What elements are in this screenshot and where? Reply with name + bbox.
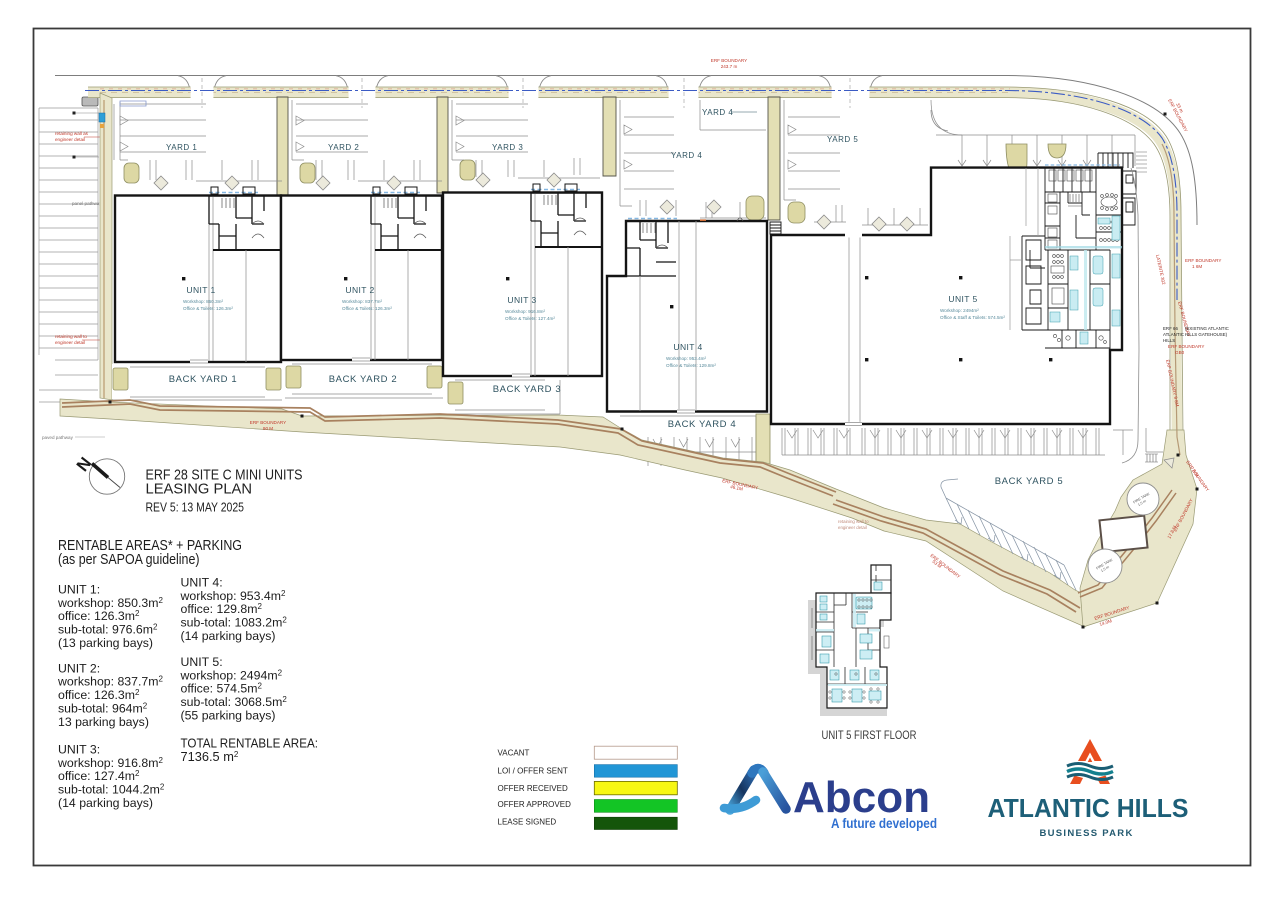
svg-text:Workshop: 953.4m²: Workshop: 953.4m² <box>666 356 706 361</box>
svg-text:office: 129.8m2: office: 129.8m2 <box>181 602 263 616</box>
svg-text:13 parking bays): 13 parking bays) <box>58 715 149 729</box>
svg-text:retaining wall to: retaining wall to <box>55 334 87 339</box>
svg-text:Workshop: 916.8m²: Workshop: 916.8m² <box>505 309 545 314</box>
svg-text:UNIT 5 FIRST FLOOR: UNIT 5 FIRST FLOOR <box>822 728 917 742</box>
svg-text:paved pathway: paved pathway <box>42 435 74 440</box>
svg-text:BUSINESS PARK: BUSINESS PARK <box>1040 828 1137 839</box>
svg-text:7136.5 m2: 7136.5 m2 <box>181 749 239 764</box>
svg-text:(as per SAPOA guideline): (as per SAPOA guideline) <box>58 552 200 568</box>
svg-text:BACK YARD 1: BACK YARD 1 <box>169 374 238 385</box>
svg-text:Office & Staff & Toilets: 574.: Office & Staff & Toilets: 574.5m² <box>940 315 1005 320</box>
svg-text:Workshop: 2494m²: Workshop: 2494m² <box>940 308 979 313</box>
svg-text:office: 574.5m2: office: 574.5m2 <box>181 682 263 696</box>
svg-text:1 6M: 1 6M <box>1192 264 1202 269</box>
svg-text:(EXISTING ATLANTIC: (EXISTING ATLANTIC <box>1185 326 1229 331</box>
svg-text:ATLANTIC HILLS: ATLANTIC HILLS <box>988 795 1189 823</box>
svg-text:HILLS GATEHOUSE): HILLS GATEHOUSE) <box>1185 332 1228 337</box>
svg-text:YARD 4: YARD 4 <box>702 108 733 117</box>
svg-text:(14 parking bays): (14 parking bays) <box>181 629 276 643</box>
svg-text:Workshop: 850.3m²: Workshop: 850.3m² <box>183 299 223 304</box>
svg-text:A future developed: A future developed <box>831 816 937 831</box>
svg-text:YARD 2: YARD 2 <box>328 143 359 152</box>
svg-text:Abcon: Abcon <box>793 773 930 822</box>
svg-text:BACK YARD 3: BACK YARD 3 <box>493 384 562 395</box>
svg-text:ATLANTIC: ATLANTIC <box>1163 332 1184 337</box>
svg-text:workshop: 837.7m2: workshop: 837.7m2 <box>57 675 163 689</box>
svg-text:UNIT 1:: UNIT 1: <box>58 582 100 596</box>
svg-text:Office & Toilets: 126.3m²: Office & Toilets: 126.3m² <box>342 306 392 311</box>
svg-text:ERF BOUNDARY: ERF BOUNDARY <box>1168 344 1204 349</box>
svg-text:Office & Toilets: 129.8m²: Office & Toilets: 129.8m² <box>666 363 716 368</box>
svg-text:UNIT 5: UNIT 5 <box>948 294 977 304</box>
svg-text:YARD 3: YARD 3 <box>492 143 523 152</box>
svg-text:workshop: 850.3m2: workshop: 850.3m2 <box>57 596 163 610</box>
svg-text:workshop: 916.8m2: workshop: 916.8m2 <box>57 756 163 770</box>
svg-text:office: 126.3m2: office: 126.3m2 <box>58 609 140 623</box>
svg-text:LEASE SIGNED: LEASE SIGNED <box>498 817 557 826</box>
svg-text:BACK YARD 2: BACK YARD 2 <box>329 374 398 385</box>
svg-text:UNIT 2: UNIT 2 <box>345 285 374 295</box>
svg-text:(55 parking bays): (55 parking bays) <box>181 708 276 722</box>
svg-text:office: 127.4m2: office: 127.4m2 <box>58 769 140 783</box>
svg-text:ERF BOUNDARY: ERF BOUNDARY <box>711 58 747 63</box>
svg-text:REV 5: 13 MAY 2025: REV 5: 13 MAY 2025 <box>146 500 245 515</box>
svg-text:sub-total: 964m2: sub-total: 964m2 <box>58 701 148 715</box>
svg-text:sub-total: 1044.2m2: sub-total: 1044.2m2 <box>58 783 165 797</box>
svg-text:UNIT 3: UNIT 3 <box>507 295 536 305</box>
svg-text:panel pathway: panel pathway <box>72 201 102 206</box>
svg-text:workshop: 953.4m2: workshop: 953.4m2 <box>180 589 286 603</box>
svg-text:OFFER APPROVED: OFFER APPROVED <box>498 800 572 809</box>
svg-text:workshop: 2494m2: workshop: 2494m2 <box>180 668 283 682</box>
svg-text:engineer detail: engineer detail <box>838 525 867 530</box>
svg-text:HILLS: HILLS <box>1163 338 1175 343</box>
svg-text:retaining wall as: retaining wall as <box>55 131 89 136</box>
svg-text:Office & Toilets: 127.4m²: Office & Toilets: 127.4m² <box>505 316 555 321</box>
svg-text:office: 126.3m2: office: 126.3m2 <box>58 688 140 702</box>
svg-text:(13 parking bays): (13 parking bays) <box>58 636 153 650</box>
svg-text:engineer detail: engineer detail <box>55 340 85 345</box>
svg-text:(14 parking bays): (14 parking bays) <box>58 796 153 810</box>
svg-text:GB0: GB0 <box>1175 350 1185 355</box>
svg-text:sub-total: 1083.2m2: sub-total: 1083.2m2 <box>181 616 288 630</box>
svg-text:UNIT 5:: UNIT 5: <box>181 655 223 669</box>
svg-text:ERF BOUNDARY: ERF BOUNDARY <box>1185 258 1221 263</box>
svg-text:UNIT 4:: UNIT 4: <box>181 575 223 589</box>
svg-text:BACK YARD 5: BACK YARD 5 <box>995 476 1064 487</box>
svg-text:UNIT 3:: UNIT 3: <box>58 742 100 756</box>
svg-text:90 M: 90 M <box>263 426 273 431</box>
svg-text:ERF 66: ERF 66 <box>1163 326 1178 331</box>
svg-text:Workshop: 837.7m²: Workshop: 837.7m² <box>342 299 382 304</box>
svg-text:YARD 4: YARD 4 <box>671 151 702 160</box>
svg-text:UNIT 2:: UNIT 2: <box>58 661 100 675</box>
svg-text:sub-total: 976.6m2: sub-total: 976.6m2 <box>58 623 158 637</box>
svg-text:LOI / OFFER SENT: LOI / OFFER SENT <box>498 767 568 776</box>
svg-text:243.7 m: 243.7 m <box>721 64 738 69</box>
svg-text:sub-total: 3068.5m2: sub-total: 3068.5m2 <box>181 695 288 709</box>
svg-text:Office & Toilets: 126.3m²: Office & Toilets: 126.3m² <box>183 306 233 311</box>
svg-text:ERF BOUNDARY: ERF BOUNDARY <box>250 420 286 425</box>
svg-text:LEASING PLAN: LEASING PLAN <box>146 482 253 498</box>
svg-text:UNIT 1: UNIT 1 <box>186 285 215 295</box>
svg-text:YARD 5: YARD 5 <box>827 135 858 144</box>
svg-text:retaining wall to: retaining wall to <box>838 519 869 524</box>
svg-text:engineer detail: engineer detail <box>55 137 85 142</box>
svg-text:YARD 1: YARD 1 <box>166 143 197 152</box>
svg-text:OFFER RECEIVED: OFFER RECEIVED <box>498 784 568 793</box>
svg-text:VACANT: VACANT <box>498 748 530 757</box>
svg-text:UNIT 4: UNIT 4 <box>673 342 702 352</box>
svg-text:BACK YARD 4: BACK YARD 4 <box>668 419 737 430</box>
